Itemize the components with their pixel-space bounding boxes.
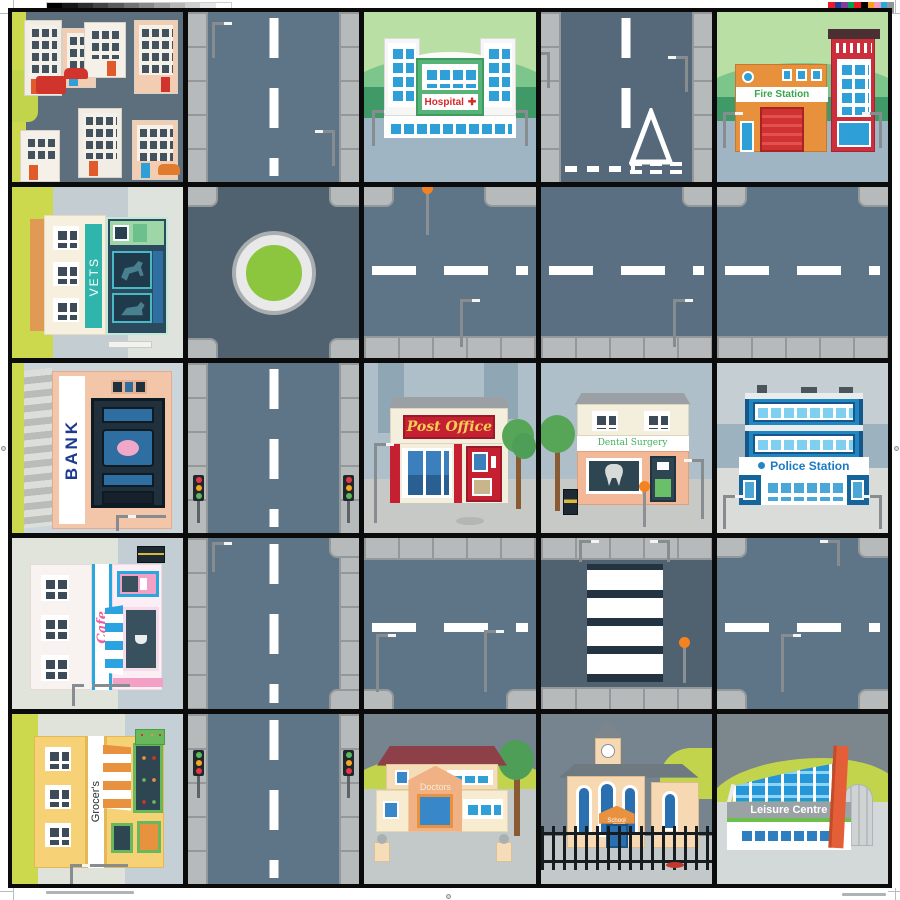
- window-grid: [25, 135, 55, 163]
- sidewalk-corner: [506, 689, 536, 709]
- lamp-light: [388, 634, 396, 637]
- tile-road-horizontal: [364, 538, 535, 708]
- lamp-light: [508, 110, 516, 113]
- fire-station-main-block: Fire Station: [735, 64, 827, 152]
- fire-station-building: Fire Station: [735, 28, 875, 152]
- hospital-right-tower: [480, 38, 516, 116]
- vets-label: VETS: [87, 257, 101, 296]
- upper-facade: Post Office: [390, 408, 508, 444]
- street-lamp: [372, 110, 375, 146]
- tile-road-traffic-lights: [188, 363, 359, 533]
- road-center-line: [725, 623, 880, 632]
- window: [53, 262, 79, 286]
- window: [113, 382, 122, 392]
- crop-mark: [888, 891, 900, 892]
- poster: [133, 224, 147, 242]
- traffic-light: [343, 475, 354, 501]
- lamp-light: [862, 495, 870, 498]
- sidewalk: [541, 687, 712, 709]
- tile-grocers: Grocer's: [12, 714, 183, 884]
- sidewalk-corner: [364, 187, 394, 207]
- door: [89, 161, 98, 176]
- tile-road-horizontal: [364, 187, 535, 357]
- cat-icon: [114, 295, 150, 321]
- window: [782, 69, 793, 81]
- iron-fence: [541, 826, 712, 870]
- side-wing: [847, 475, 869, 505]
- window-row: [782, 69, 822, 81]
- tower-roof: [828, 29, 880, 39]
- road-center-line: [269, 720, 278, 878]
- sidewalk-corner: [484, 187, 536, 207]
- sidewalk: [541, 12, 561, 182]
- hospital-building: Hospital ✚: [384, 38, 516, 138]
- apartment-house: [134, 20, 178, 94]
- shop-front: [577, 451, 689, 505]
- lamp-light: [384, 110, 392, 113]
- door-panel: [655, 479, 671, 497]
- sidewalk: [364, 336, 535, 358]
- vent-slits: [836, 43, 872, 53]
- tile-police-station: Police Station: [717, 363, 888, 533]
- window-grid: [388, 43, 416, 107]
- tile-road-vertical: [188, 12, 359, 182]
- ground-floor: [739, 475, 869, 505]
- tile-residential-houses: [12, 12, 183, 182]
- litter-bin: [137, 546, 165, 563]
- traffic-light-pole: [347, 776, 350, 798]
- give-way-line: [630, 170, 686, 174]
- road-center-line: [269, 544, 278, 702]
- window-grid: [422, 64, 478, 90]
- sidewalk-corner: [188, 187, 218, 207]
- display-window: [102, 407, 154, 423]
- dark-pane: [122, 576, 138, 592]
- street-lamp: [212, 22, 215, 58]
- roof-antenna: [757, 385, 767, 393]
- tooth-window: [586, 458, 642, 494]
- door: [107, 61, 116, 76]
- registration-dot: [894, 446, 899, 451]
- facade: VETS: [44, 215, 106, 335]
- grocers-label: Grocer's: [90, 781, 102, 822]
- tile-hospital: Hospital ✚: [364, 12, 535, 182]
- door: [141, 163, 150, 178]
- bench: [108, 341, 152, 348]
- arched-window: [662, 791, 678, 831]
- display-window: [102, 473, 154, 487]
- tile-leisure-centre: Leisure Centre: [717, 714, 888, 884]
- sidewalk: [339, 12, 359, 182]
- window: [796, 69, 807, 81]
- window: [41, 655, 69, 681]
- upper-facade: [577, 404, 689, 436]
- street-lamp: [376, 634, 379, 692]
- sidewalk-corner: [858, 538, 888, 558]
- window-row: [753, 402, 855, 422]
- print-timestamp-mark: [842, 893, 886, 896]
- red-car: [64, 68, 88, 79]
- street-lamp: [116, 515, 119, 531]
- window-grid: [484, 43, 512, 107]
- window: [136, 382, 145, 392]
- window: [811, 69, 822, 81]
- sidewalk-corner: [717, 538, 747, 558]
- sidewalk: [364, 538, 535, 560]
- window-grid: [837, 59, 871, 117]
- crop-mark: [0, 891, 14, 892]
- door-window: [657, 462, 669, 470]
- bank-building: BANK: [52, 371, 172, 529]
- lamp-light: [128, 515, 136, 518]
- hospital-sign: Hospital ✚: [422, 94, 478, 110]
- window: [53, 298, 79, 322]
- green-light: [346, 493, 352, 499]
- window: [463, 799, 503, 819]
- street-lamp: [374, 443, 377, 523]
- give-way-line: [565, 166, 635, 172]
- lamp-light: [591, 540, 599, 543]
- shop-window: [111, 823, 133, 853]
- red-light: [346, 477, 352, 483]
- door: [161, 77, 170, 92]
- street-lamp: [212, 542, 215, 572]
- tile-road-give-way: [541, 12, 712, 182]
- street-lamp: [667, 540, 670, 562]
- sidewalk-corner: [188, 338, 218, 358]
- sidewalk-corner: [364, 689, 394, 709]
- street-lamp: [72, 684, 75, 706]
- street-lamp: [701, 459, 704, 519]
- street-lamp: [70, 864, 73, 884]
- side-door: [740, 121, 754, 152]
- sidewalk-corner: [682, 187, 712, 207]
- street-lamp: [723, 495, 726, 529]
- sidewalk-corner: [717, 689, 747, 709]
- sidewalk: [188, 714, 208, 884]
- tile-vets: VETS: [12, 187, 183, 357]
- green-light: [196, 493, 202, 499]
- window: [45, 823, 71, 847]
- street-lamp: [525, 110, 528, 146]
- sidewalk-corner: [329, 538, 359, 558]
- dental-sign: Dental Surgery: [577, 436, 689, 451]
- dog-icon: [114, 253, 150, 287]
- red-light: [196, 768, 202, 774]
- sidewalk-corner: [858, 187, 888, 207]
- zebra-stripes: [577, 562, 673, 684]
- grass-strip: [12, 363, 24, 533]
- post-office-sign: Post Office: [403, 415, 495, 439]
- police-building: Police Station: [739, 393, 869, 505]
- tree-canopy: [541, 415, 575, 453]
- lamp-light: [472, 299, 480, 302]
- bank-label: BANK: [62, 419, 82, 480]
- tower-roof: [593, 720, 623, 738]
- gate-post: [374, 842, 390, 862]
- window: [592, 411, 618, 431]
- hospital-center-block: Hospital ✚: [416, 58, 484, 116]
- entrance-door: [417, 794, 453, 828]
- tile-road-horizontal: [717, 538, 888, 708]
- side-wing: [739, 475, 761, 505]
- glass-doors: [737, 825, 841, 847]
- cat-display-panel: [112, 293, 152, 323]
- lamp-arm: [541, 52, 548, 55]
- lamp-light: [793, 634, 801, 637]
- street-lamp: [879, 112, 882, 148]
- sidewalk-corner: [717, 187, 747, 207]
- sidewalk: [188, 538, 208, 708]
- red-light: [196, 477, 202, 483]
- grocers-building: Grocer's: [34, 736, 164, 868]
- tile-road-horizontal: [541, 187, 712, 357]
- striped-awning: [105, 605, 123, 675]
- sidewalk: [541, 336, 712, 358]
- sidewalk: [188, 12, 208, 182]
- round-badge: [742, 71, 754, 83]
- vets-sign: VETS: [85, 224, 102, 328]
- tile-bank: BANK: [12, 363, 183, 533]
- lamp-light: [386, 443, 394, 446]
- post-ball: [377, 834, 387, 844]
- street-lamp: [723, 112, 726, 148]
- shop-window: [402, 448, 452, 498]
- lamp-light: [862, 112, 870, 115]
- dog-display-panel: [112, 251, 152, 289]
- road-center-line: [372, 266, 527, 275]
- leisure-building: Leisure Centre: [727, 762, 879, 854]
- road-center-line: [725, 266, 880, 275]
- traffic-light: [193, 475, 204, 501]
- window-grid: [139, 25, 173, 75]
- tile-road-horizontal: [717, 187, 888, 357]
- lamp-light: [668, 56, 676, 59]
- window: [125, 382, 134, 392]
- pilaster: [390, 444, 400, 503]
- belisha-beacon: [683, 647, 686, 683]
- street-lamp: [579, 540, 582, 562]
- post-ball: [499, 834, 509, 844]
- town-playmat: Hospital ✚: [8, 8, 892, 888]
- lamp-light: [315, 130, 323, 133]
- tile-school: School: [541, 714, 712, 884]
- lamp-light: [224, 22, 232, 25]
- tile-fire-station: Fire Station: [717, 12, 888, 182]
- tree-canopy: [512, 433, 535, 459]
- window: [395, 770, 409, 785]
- red-puddle: [666, 862, 684, 868]
- amber-light: [346, 485, 352, 491]
- entrance: [466, 446, 502, 502]
- cafe-window: [123, 607, 159, 671]
- litter-bin: [563, 489, 578, 515]
- wing-window: [743, 480, 756, 500]
- upper-panel: [117, 571, 159, 597]
- sidewalk-corner: [858, 689, 888, 709]
- facade: [34, 736, 86, 868]
- street-lamp: [332, 130, 335, 166]
- window: [45, 785, 71, 809]
- dental-label: Dental Surgery: [598, 438, 668, 448]
- lamp-arm: [118, 515, 166, 518]
- amber-light: [196, 760, 202, 766]
- road-center-line: [269, 18, 278, 176]
- door-sign: [491, 456, 496, 468]
- glass-doors: [837, 121, 871, 147]
- door: [29, 165, 38, 180]
- tree-trunk: [516, 453, 521, 509]
- give-way-triangle: [629, 108, 673, 166]
- street-lamp: [673, 299, 676, 347]
- apartment-house: [20, 130, 60, 182]
- garage-door: [760, 107, 804, 152]
- lamp-arm: [74, 684, 130, 687]
- street-lamp: [484, 630, 487, 692]
- street-lamp: [879, 495, 882, 529]
- facade: [30, 564, 92, 690]
- coffee-cup-icon: [135, 635, 147, 644]
- sidewalk: [692, 12, 712, 182]
- apartment-house: [78, 108, 122, 178]
- green-light: [196, 752, 202, 758]
- window-grid: [137, 125, 173, 161]
- tile-zebra-crossing: [541, 538, 712, 708]
- lamp-light: [735, 495, 743, 498]
- fire-station-label: Fire Station: [754, 89, 809, 100]
- lamp-light: [496, 630, 504, 633]
- middle-floor: [745, 431, 863, 457]
- pilaster: [454, 444, 462, 503]
- amber-light: [346, 760, 352, 766]
- lamp-light: [224, 542, 232, 545]
- shop-front: [390, 444, 508, 503]
- lamp-arm: [72, 864, 128, 867]
- registration-dot: [1, 446, 6, 451]
- tile-doctors: Doctors: [364, 714, 535, 884]
- beacon-ball: [639, 481, 650, 492]
- hospital-label: Hospital: [424, 97, 463, 108]
- fire-tower: [831, 38, 875, 152]
- window: [383, 801, 399, 819]
- beacon-ball: [422, 187, 433, 194]
- glass-entrance: [763, 477, 845, 503]
- tile-cafe: Cafe: [12, 538, 183, 708]
- orange-car: [158, 164, 180, 175]
- transom: [110, 221, 164, 245]
- lamp-light: [685, 299, 693, 302]
- street-lamp: [781, 634, 784, 692]
- post-office-label: Post Office: [407, 419, 492, 435]
- sidewalk: [717, 336, 888, 358]
- leisure-label: Leisure Centre: [750, 804, 827, 816]
- hospital-ground-floor: [384, 116, 516, 138]
- traffic-light-pole: [347, 501, 350, 523]
- glass-roof: [733, 762, 845, 802]
- registration-dot: [446, 894, 451, 899]
- roundabout-island: [236, 235, 312, 311]
- belisha-beacon: [643, 491, 646, 527]
- window: [41, 615, 69, 641]
- window: [41, 575, 69, 601]
- sidewalk-corner: [329, 338, 359, 358]
- doctors-building: Doctors: [376, 746, 508, 832]
- sidewalk: [339, 538, 359, 708]
- roof-block: [36, 76, 66, 94]
- shop-front: [106, 217, 168, 335]
- lamp-light: [820, 540, 828, 543]
- road-center-line: [269, 369, 278, 527]
- lamp-light: [684, 459, 692, 462]
- upper-floor: [745, 399, 863, 425]
- sidewalk-corner: [329, 689, 359, 709]
- bank-sign: BANK: [59, 376, 85, 524]
- tree: [500, 419, 535, 509]
- shop-door: [137, 821, 161, 853]
- entrance-door: [650, 456, 676, 502]
- shop-section: [112, 564, 162, 690]
- tile-dental-surgery: Dental Surgery: [541, 363, 712, 533]
- street-lamp: [547, 52, 550, 88]
- piggy-bank-icon: [117, 440, 139, 456]
- piggy-bank-display: [102, 429, 154, 467]
- sidewalk: [339, 714, 359, 884]
- apartment-house: [84, 22, 126, 78]
- glass-column: [153, 251, 163, 323]
- stairs: [24, 367, 52, 528]
- hospital-left-tower: [384, 38, 420, 116]
- tree-trunk: [555, 451, 560, 511]
- police-label: Police Station: [770, 459, 849, 473]
- lamp-light: [84, 684, 92, 687]
- police-sign: Police Station: [739, 457, 869, 475]
- sidewalk: [541, 538, 712, 560]
- crop-mark: [13, 888, 14, 900]
- bank-shop-front: [91, 398, 165, 508]
- tile-road-vertical: [188, 538, 359, 708]
- fire-station-sign: Fire Station: [736, 87, 828, 102]
- doctors-label: Doctors: [408, 782, 462, 792]
- produce-display: [133, 743, 163, 813]
- flower-box: [135, 729, 165, 745]
- transom-windows: [111, 380, 147, 394]
- sidewalk-corner: [329, 187, 359, 207]
- lamp-light: [82, 864, 90, 867]
- shop-section: [106, 736, 164, 868]
- window-grid: [89, 27, 121, 59]
- give-way-line: [630, 162, 686, 166]
- lower-panel: [102, 491, 154, 505]
- gate-post: [496, 842, 512, 862]
- window-grid: [83, 113, 117, 159]
- window-grid: [29, 25, 57, 77]
- striped-awning: [103, 745, 131, 811]
- window-row: [753, 434, 855, 454]
- lamp-light: [735, 112, 743, 115]
- poster: [113, 225, 129, 241]
- beacon-ball: [679, 637, 690, 648]
- crop-mark: [895, 0, 896, 14]
- cafe-building: Cafe: [30, 564, 162, 690]
- tile-post-office: Post Office: [364, 363, 535, 533]
- traffic-light-pole: [197, 501, 200, 523]
- side-wall: [30, 219, 44, 331]
- tile-roundabout: [188, 187, 359, 357]
- street-lamp: [837, 540, 840, 566]
- window: [45, 747, 71, 771]
- amber-light: [196, 485, 202, 491]
- small-sign: [140, 578, 147, 590]
